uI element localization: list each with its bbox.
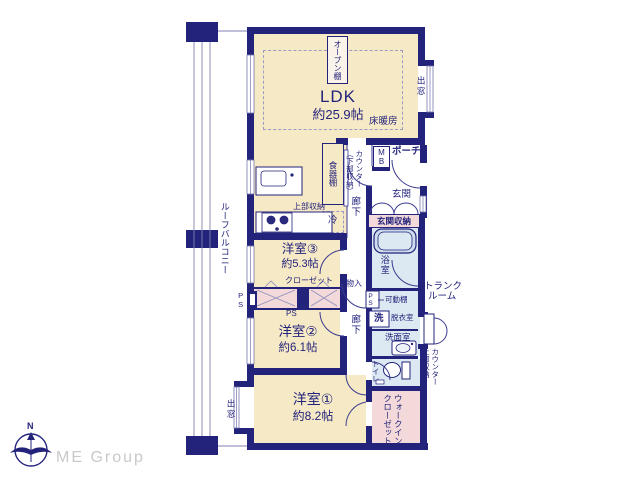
trunk-room-label: トランク ルーム: [424, 282, 462, 303]
bay-window-bottom-label: 出窓: [226, 399, 235, 420]
counter-upper-storage-label: カウンター 上部収納: [421, 348, 440, 386]
pipe-space-shaft: [248, 291, 257, 308]
dressing-room-label: 脱衣室: [391, 314, 414, 322]
bath-fixtures: [374, 229, 416, 253]
counter-lower-line2: （下部収納）: [345, 150, 354, 195]
wic-line2: クローゼット: [382, 394, 393, 445]
storage-label: 物入: [346, 280, 362, 289]
floor-heating-label: 床暖房: [369, 117, 398, 127]
me-group-logo: ME Group: [56, 449, 145, 467]
laundry-label: 洗: [374, 314, 384, 324]
counter-lower-storage-label: カウンター （下部収納）: [345, 150, 364, 195]
trunk-room-line2: ルーム: [424, 292, 462, 302]
room-size-bedroom3: 約5.3帖: [262, 259, 338, 271]
floor-plan: オープン棚 食器棚 MB 玄関収納: [0, 0, 640, 480]
bathroom-label: 浴室: [379, 255, 389, 275]
trunk-room-door: [424, 314, 447, 344]
kitchen-fixtures: [256, 167, 332, 233]
entrance-label: 玄関: [392, 190, 411, 200]
counter-upper-line1: カウンター: [430, 348, 439, 386]
counter-lower-line1: カウンター: [354, 150, 363, 195]
ps-bath-label: PS: [367, 293, 374, 307]
compass-north-label: N: [27, 422, 34, 432]
washroom-label: 洗面室: [385, 333, 411, 342]
compass-icon: [10, 432, 52, 466]
upper-storage-kitchen-label: 上部収納: [293, 203, 325, 212]
counter-upper-line2: 上部収納: [421, 348, 430, 386]
ps-center-label: PS: [286, 310, 297, 319]
room-label-bedroom1: 洋室①: [268, 392, 358, 407]
hallway-lower-label: 廊下: [349, 314, 359, 335]
wic-line1: ウォークイン: [393, 394, 404, 445]
room-label-bedroom2: 洋室②: [258, 325, 338, 340]
toilet-label: トイレ: [371, 360, 379, 383]
ps-left-label: PS: [236, 291, 244, 309]
roof-balcony-label: ルーフバルコニー: [219, 202, 229, 274]
bay-window-top-label: 出窓: [416, 76, 425, 97]
hallway-upper-label: 廊下: [349, 196, 359, 217]
room-size-bedroom1: 約8.2帖: [268, 410, 358, 423]
room-label-ldk: LDK: [288, 88, 388, 106]
movable-shelf-label: 可動棚: [385, 296, 408, 304]
fridge-label: 冷: [328, 216, 338, 226]
closet-label: クローゼット: [285, 277, 333, 286]
porch-label: ポーチ: [392, 147, 421, 157]
room-size-bedroom2: 約6.1帖: [258, 342, 338, 354]
toilet-fixture: [376, 362, 410, 384]
walk-in-closet-label: ウォークイン クローゼット: [382, 394, 403, 445]
room-label-bedroom3: 洋室③: [262, 243, 338, 257]
plan-graphics: [0, 0, 640, 480]
